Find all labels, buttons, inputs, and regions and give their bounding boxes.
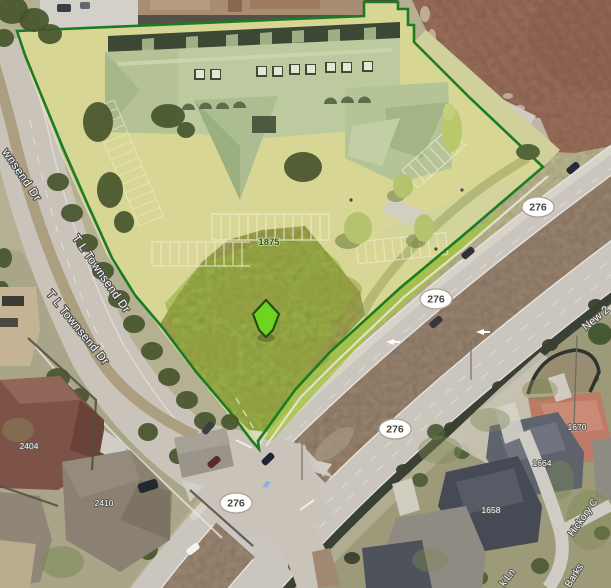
svg-text:1658: 1658 xyxy=(482,505,501,515)
svg-text:276: 276 xyxy=(529,202,547,214)
svg-text:1875: 1875 xyxy=(258,237,280,248)
svg-text:1670: 1670 xyxy=(568,422,587,432)
svg-text:2410: 2410 xyxy=(95,498,114,508)
svg-text:276: 276 xyxy=(427,294,445,306)
svg-text:1664: 1664 xyxy=(533,458,552,468)
svg-text:276: 276 xyxy=(227,498,245,510)
svg-text:2404: 2404 xyxy=(20,441,39,451)
svg-text:276: 276 xyxy=(386,424,404,436)
